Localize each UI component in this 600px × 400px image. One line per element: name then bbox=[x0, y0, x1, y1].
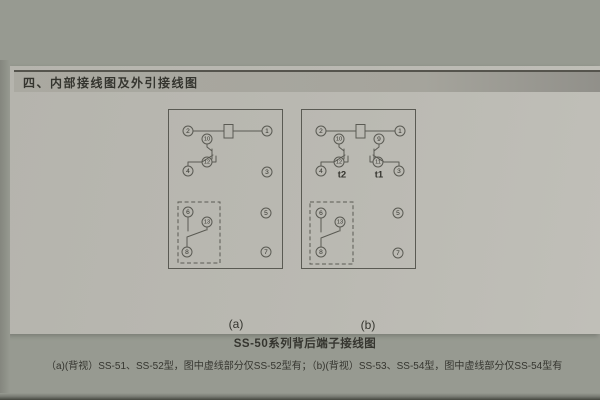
terminal-diagram-a: 21101243613587 bbox=[168, 109, 283, 269]
document-page: 四、内部接线图及外引接线图 21101243613587 2110 bbox=[10, 66, 600, 334]
terminal-5-number: 5 bbox=[264, 210, 268, 217]
terminal-6-number: 6 bbox=[319, 210, 323, 217]
photo-edge-shadow bbox=[0, 393, 600, 400]
contact-tag-t2: t2 bbox=[338, 170, 346, 181]
contact-tag-t1: t1 bbox=[375, 170, 384, 181]
terminal-8-number: 8 bbox=[319, 249, 323, 256]
coil-symbol bbox=[356, 125, 365, 139]
terminal-11-number: 11 bbox=[375, 159, 381, 165]
terminal-8-number: 8 bbox=[185, 249, 189, 256]
terminal-2-number: 2 bbox=[186, 128, 190, 135]
photo-background: 四、内部接线图及外引接线图 21101243613587 2110 bbox=[0, 0, 600, 400]
terminal-4-number: 4 bbox=[319, 168, 323, 175]
terminal-4-number: 4 bbox=[186, 168, 190, 175]
terminal-3-number: 3 bbox=[397, 168, 401, 175]
diagram-b-label: (b) bbox=[353, 318, 383, 332]
terminal-5-number: 5 bbox=[396, 210, 400, 217]
coil-symbol bbox=[224, 125, 233, 139]
terminal-10-number: 10 bbox=[204, 136, 210, 142]
terminal-7-number: 7 bbox=[264, 249, 268, 256]
terminal-diagram-b: 21109121143613587t2t1 bbox=[301, 109, 416, 269]
terminal-13-number: 13 bbox=[204, 219, 210, 225]
terminal-13-number: 13 bbox=[337, 219, 343, 225]
figure-caption: SS-50系列背后端子接线图 bbox=[155, 335, 455, 351]
terminal-1-number: 1 bbox=[265, 128, 269, 135]
terminal-6-number: 6 bbox=[186, 209, 190, 216]
terminal-2-number: 2 bbox=[319, 128, 323, 135]
terminal-1-number: 1 bbox=[398, 128, 402, 135]
section-title: 四、内部接线图及外引接线图 bbox=[14, 74, 199, 91]
terminal-9-number: 9 bbox=[377, 136, 381, 143]
terminal-7-number: 7 bbox=[396, 250, 400, 257]
terminal-markers: 21109121143613587t2t1 bbox=[316, 126, 405, 258]
figure-area: 21101243613587 21109121143613587t2t1 (a)… bbox=[10, 109, 600, 269]
terminal-3-number: 3 bbox=[265, 169, 269, 176]
figure-description: （a)(背视）SS-51、SS-52型，图中虚线部分仅SS-52型有；（b)(背… bbox=[46, 357, 591, 372]
terminal-markers: 21101243613587 bbox=[182, 126, 272, 257]
terminal-10-number: 10 bbox=[336, 136, 342, 142]
photo-edge-left bbox=[0, 60, 10, 400]
diagram-a-label: (a) bbox=[221, 317, 251, 331]
terminal-12-number: 12 bbox=[336, 159, 342, 165]
section-header: 四、内部接线图及外引接线图 bbox=[14, 70, 600, 92]
terminal-12-number: 12 bbox=[204, 159, 210, 165]
